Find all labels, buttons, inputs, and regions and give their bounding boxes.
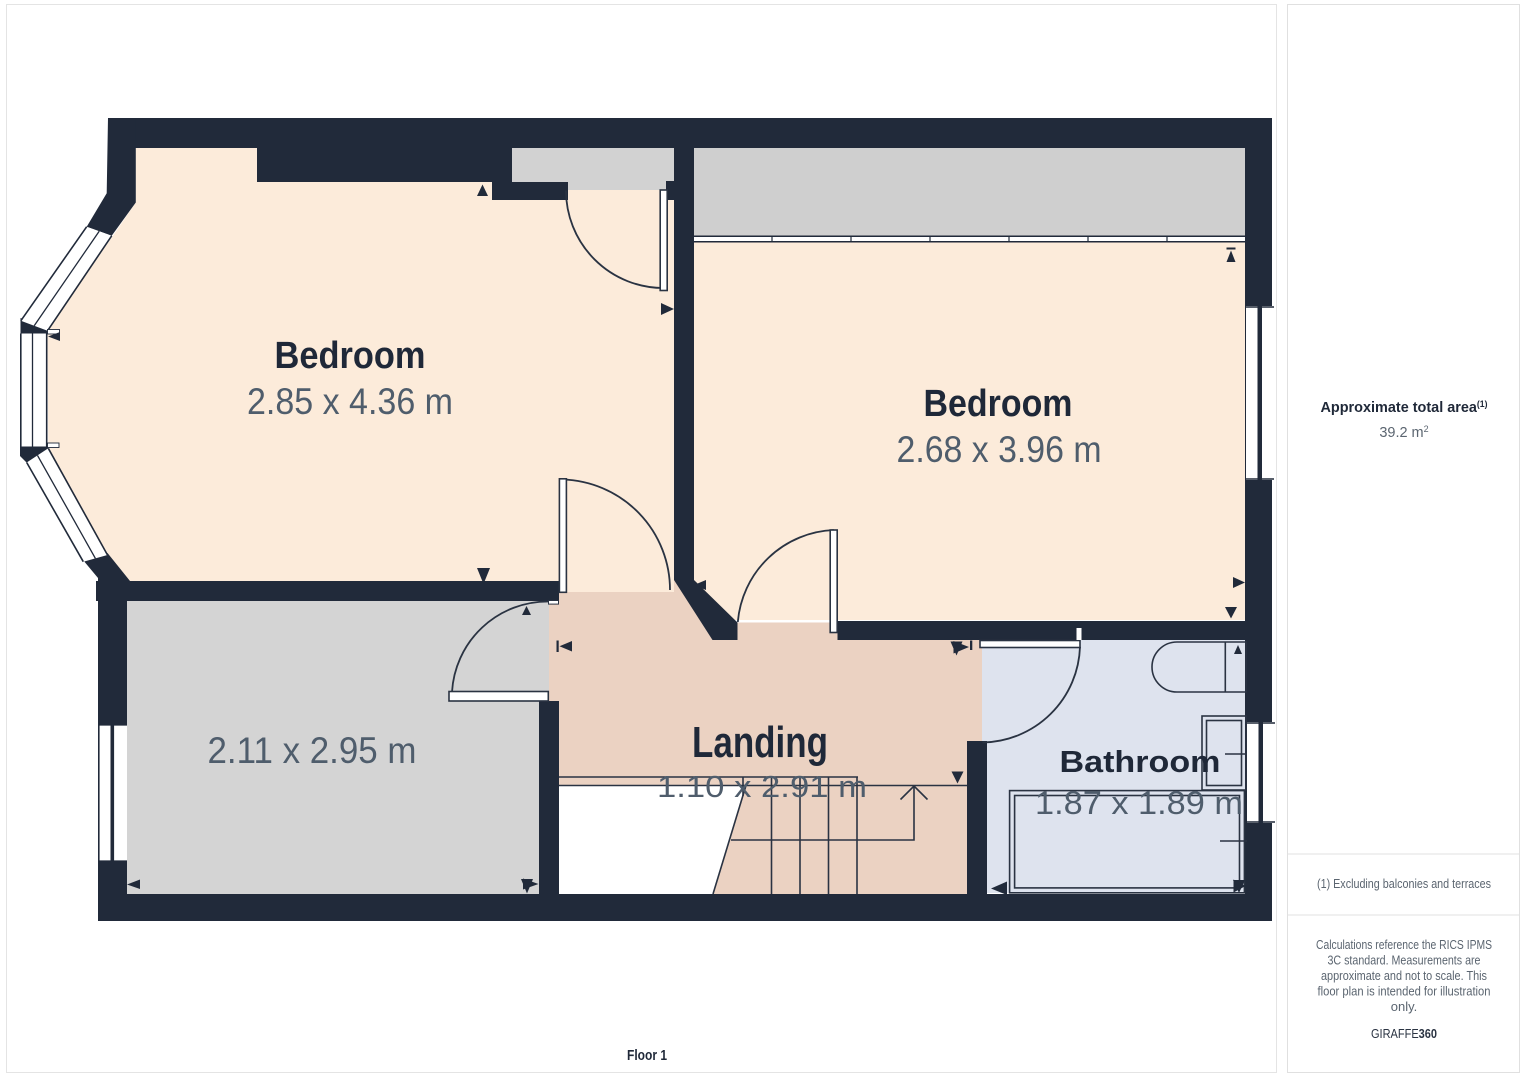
svg-text:2.85 x 4.36 m: 2.85 x 4.36 m <box>247 381 453 422</box>
svg-text:approximate and not to scale.: approximate and not to scale. This <box>1321 968 1487 983</box>
svg-text:Landing: Landing <box>692 718 828 767</box>
svg-text:floor plan is intended for ill: floor plan is intended for illustration <box>1318 984 1491 999</box>
svg-text:Approximate total area(1): Approximate total area(1) <box>1321 399 1488 416</box>
svg-text:2.68 x 3.96 m: 2.68 x 3.96 m <box>897 429 1102 470</box>
svg-text:1.87 x 1.89 m: 1.87 x 1.89 m <box>1035 785 1243 821</box>
svg-text:GIRAFFE360: GIRAFFE360 <box>1371 1027 1437 1041</box>
svg-text:Bathroom: Bathroom <box>1060 744 1221 779</box>
svg-text:1.10 x 2.91 m: 1.10 x 2.91 m <box>657 769 867 804</box>
svg-text:3C standard. Measurements are: 3C standard. Measurements are <box>1328 953 1481 968</box>
svg-text:Bedroom: Bedroom <box>275 335 426 377</box>
svg-text:2.11 x 2.95 m: 2.11 x 2.95 m <box>208 730 417 771</box>
svg-text:Floor 1: Floor 1 <box>627 1048 667 1064</box>
svg-text:only.: only. <box>1391 999 1418 1014</box>
svg-text:39.2 m2: 39.2 m2 <box>1379 424 1428 441</box>
svg-text:(1) Excluding balconies and te: (1) Excluding balconies and terraces <box>1317 876 1491 891</box>
svg-text:Bedroom: Bedroom <box>924 383 1073 425</box>
svg-text:Calculations reference the RIC: Calculations reference the RICS IPMS <box>1316 937 1492 952</box>
